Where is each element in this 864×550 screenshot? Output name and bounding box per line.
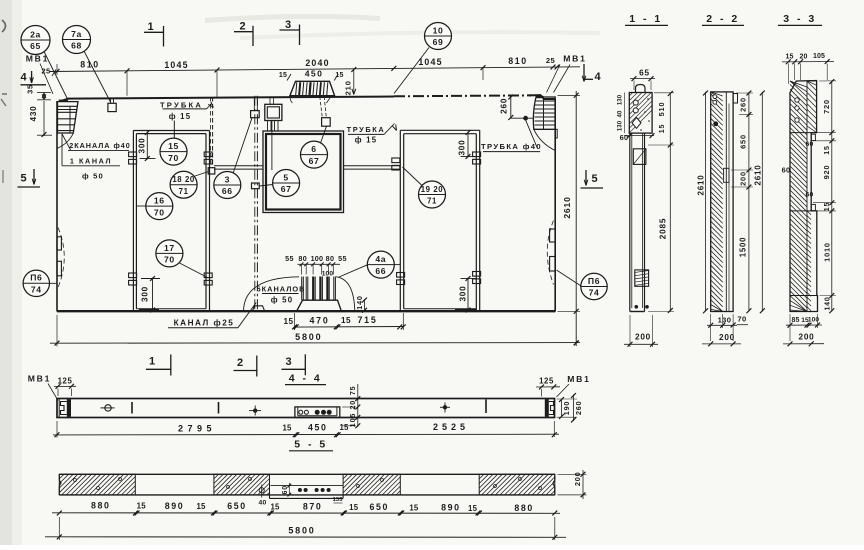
svg-text:69: 69	[433, 37, 444, 47]
svg-text:100: 100	[311, 254, 324, 263]
svg-text:200: 200	[719, 333, 735, 342]
svg-text:890: 890	[441, 503, 460, 513]
svg-text:300: 300	[137, 137, 146, 153]
svg-text:15: 15	[409, 503, 419, 512]
svg-text:19 20: 19 20	[421, 185, 444, 194]
svg-text:2КАНАЛА ф40: 2КАНАЛА ф40	[69, 141, 131, 150]
svg-text:470: 470	[309, 315, 329, 325]
svg-text:140: 140	[824, 296, 831, 310]
svg-text:10: 10	[433, 25, 444, 35]
svg-text:2а: 2а	[30, 29, 41, 39]
svg-text:870: 870	[303, 502, 322, 512]
svg-text:200: 200	[739, 171, 748, 186]
svg-text:65: 65	[639, 69, 650, 78]
svg-text:130: 130	[618, 120, 624, 131]
svg-text:66: 66	[222, 186, 233, 196]
svg-text:4 - 4: 4 - 4	[289, 373, 323, 385]
svg-text:П6: П6	[30, 273, 42, 283]
svg-text:190: 190	[562, 401, 571, 415]
svg-text:20: 20	[800, 53, 808, 60]
svg-text:ТРУБКА ф40: ТРУБКА ф40	[481, 142, 542, 151]
svg-text:2085: 2085	[658, 218, 667, 239]
svg-text:МВ1: МВ1	[563, 53, 587, 63]
svg-text:2610: 2610	[697, 175, 706, 196]
svg-text:1045: 1045	[164, 60, 188, 70]
svg-text:МВ1: МВ1	[567, 374, 591, 384]
svg-text:3: 3	[225, 174, 230, 184]
svg-text:130: 130	[618, 94, 624, 105]
svg-text:60: 60	[806, 192, 814, 199]
svg-text:15: 15	[270, 502, 280, 511]
svg-text:ф 50: ф 50	[82, 171, 104, 180]
svg-text:260: 260	[499, 98, 508, 114]
svg-text:2040: 2040	[305, 58, 329, 68]
svg-text:КАНАЛ ф25: КАНАЛ ф25	[174, 319, 235, 328]
svg-text:105: 105	[813, 53, 825, 60]
svg-text:2: 2	[237, 357, 243, 369]
svg-text:15: 15	[137, 502, 147, 511]
svg-text:68: 68	[71, 41, 82, 51]
svg-text:ф 50: ф 50	[271, 295, 293, 304]
svg-text:2610: 2610	[562, 196, 572, 218]
svg-text:810: 810	[80, 59, 99, 69]
svg-text:1: 1	[149, 356, 155, 368]
svg-text:3: 3	[285, 356, 291, 368]
svg-text:715: 715	[357, 315, 377, 325]
svg-text:15: 15	[824, 202, 831, 211]
svg-text:МВ1: МВ1	[26, 54, 50, 64]
svg-text:300: 300	[458, 285, 467, 301]
svg-text:450: 450	[308, 422, 327, 432]
svg-text:450: 450	[305, 68, 324, 78]
svg-text:260: 260	[739, 97, 748, 112]
svg-text:105: 105	[348, 413, 357, 427]
svg-text:17: 17	[164, 243, 175, 253]
svg-text:200: 200	[635, 333, 651, 342]
svg-text:ф 15: ф 15	[169, 112, 191, 121]
svg-text:ф 15: ф 15	[355, 136, 377, 145]
svg-text:5800: 5800	[295, 332, 322, 342]
svg-text:100: 100	[322, 270, 334, 277]
svg-text:1 КАНАЛ: 1 КАНАЛ	[70, 156, 112, 165]
svg-text:880: 880	[514, 503, 533, 513]
svg-text:15: 15	[196, 502, 206, 511]
svg-text:2 - 2: 2 - 2	[706, 13, 740, 25]
svg-text:720: 720	[822, 99, 831, 114]
svg-text:85: 85	[792, 317, 800, 324]
svg-text:ТРУБКА: ТРУБКА	[160, 100, 203, 109]
svg-text:880: 880	[91, 500, 110, 510]
svg-text:5800: 5800	[288, 525, 315, 535]
svg-text:1010: 1010	[822, 242, 831, 262]
svg-text:7а: 7а	[71, 29, 82, 39]
svg-text:5: 5	[20, 173, 26, 185]
svg-text:3 - 3: 3 - 3	[783, 13, 817, 25]
svg-text:135: 135	[333, 497, 344, 503]
svg-text:300: 300	[140, 286, 149, 302]
svg-text:2610: 2610	[753, 165, 762, 186]
svg-text:4: 4	[594, 71, 601, 83]
svg-text:П6: П6	[588, 276, 600, 286]
svg-text:40: 40	[618, 110, 624, 117]
svg-text:70: 70	[737, 315, 746, 324]
svg-text:15: 15	[335, 72, 343, 79]
svg-text:5 - 5: 5 - 5	[294, 439, 328, 451]
svg-text:15: 15	[659, 124, 666, 133]
svg-text:430: 430	[29, 105, 38, 121]
svg-text:200: 200	[573, 471, 582, 486]
svg-text:15: 15	[349, 503, 359, 512]
svg-text:2795: 2795	[178, 424, 216, 434]
svg-text:15: 15	[282, 424, 292, 433]
svg-text:60: 60	[806, 141, 814, 148]
svg-text:15: 15	[168, 141, 179, 151]
svg-text:67: 67	[309, 156, 320, 166]
svg-text:40: 40	[259, 500, 267, 507]
svg-text:1 - 1: 1 - 1	[629, 13, 663, 25]
svg-text:МВ1: МВ1	[28, 374, 52, 384]
svg-text:15: 15	[284, 317, 294, 326]
svg-text:210: 210	[343, 80, 352, 95]
svg-text:2525: 2525	[433, 422, 469, 432]
svg-text:75: 75	[348, 385, 357, 395]
svg-text:1045: 1045	[418, 57, 442, 67]
svg-text:1: 1	[147, 21, 153, 33]
svg-text:15: 15	[279, 72, 287, 79]
svg-text:71: 71	[179, 187, 189, 196]
svg-text:510: 510	[657, 102, 666, 117]
svg-text:16: 16	[154, 196, 165, 206]
svg-text:810: 810	[508, 56, 527, 66]
svg-text:18 20: 18 20	[172, 175, 195, 184]
svg-text:70: 70	[164, 255, 175, 265]
svg-text:ТРУБКА: ТРУБКА	[347, 125, 386, 134]
svg-text:5: 5	[591, 173, 597, 185]
svg-text:260: 260	[574, 401, 583, 415]
svg-text:1500: 1500	[738, 237, 747, 258]
svg-text:70: 70	[168, 153, 179, 163]
svg-text:920: 920	[822, 165, 831, 180]
svg-text:6: 6	[311, 144, 316, 154]
svg-text:650: 650	[227, 501, 246, 511]
svg-text:55: 55	[338, 254, 347, 263]
svg-text:80: 80	[298, 254, 307, 263]
svg-text:67: 67	[281, 184, 292, 194]
svg-text:15: 15	[341, 316, 351, 325]
svg-text:5: 5	[283, 172, 288, 182]
svg-text:890: 890	[165, 501, 184, 511]
svg-text:70: 70	[154, 207, 165, 217]
svg-text:300: 300	[458, 139, 467, 155]
svg-text:71: 71	[427, 197, 437, 206]
svg-text:25: 25	[546, 56, 556, 65]
svg-text:650: 650	[369, 502, 388, 512]
svg-text:2: 2	[239, 21, 245, 33]
svg-text:650: 650	[739, 134, 748, 149]
svg-text:4: 4	[20, 72, 27, 84]
svg-text:65: 65	[30, 41, 41, 51]
svg-text:74: 74	[589, 288, 600, 298]
svg-text:5КАНАЛОВ: 5КАНАЛОВ	[257, 284, 306, 293]
svg-text:35: 35	[26, 84, 35, 94]
svg-text:125: 125	[539, 377, 554, 386]
svg-text:80: 80	[326, 254, 335, 263]
svg-text:66: 66	[375, 266, 386, 276]
svg-text:60: 60	[782, 166, 791, 175]
svg-text:74: 74	[31, 285, 42, 295]
svg-text:15: 15	[468, 504, 478, 513]
svg-text:15: 15	[339, 423, 349, 432]
svg-text:200: 200	[798, 333, 814, 342]
svg-text:55: 55	[285, 254, 294, 263]
svg-text:15: 15	[786, 54, 794, 61]
svg-text:25: 25	[41, 67, 51, 76]
svg-text:4а: 4а	[375, 254, 386, 264]
svg-text:15: 15	[824, 145, 831, 154]
